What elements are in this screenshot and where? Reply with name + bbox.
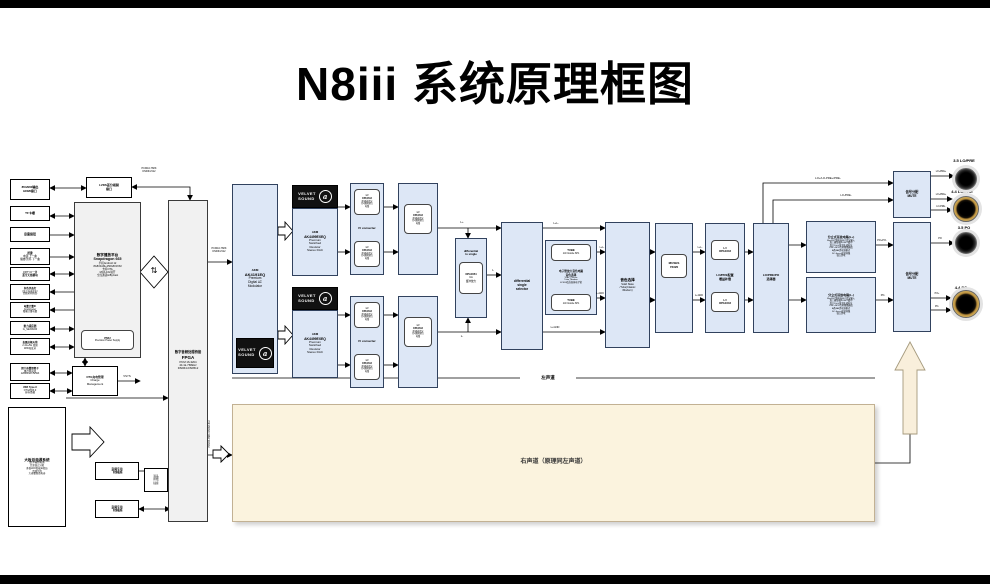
volume-control-box: 音量控制 音量控制: [655, 223, 693, 333]
status-led-box: 多色状态灯(显示充电状态/音频采样状态): [10, 284, 50, 300]
jack-35-lopre: [955, 168, 977, 190]
flywire-socket-b-box: 音频专用飞线插座: [95, 500, 139, 518]
buttons-box: 按键电源 上一曲播放/暂停 下一曲: [10, 248, 50, 265]
display-hdmi-box: 854/960输出HDMI接口: [10, 179, 50, 200]
sig-label-lgnd2: L+GND: [546, 325, 564, 331]
velvet-sound-logo-ak4191: VELVETSOUNDa: [236, 338, 274, 368]
ak4499-dac2-box: AKMAK4499EXEQPremiumSwitchedResistorSter…: [292, 310, 338, 378]
sig-label-lplus: L+: [456, 220, 468, 226]
diagram-canvas: N8iii 系统原理框图 854/960输出HDMI接口TF卡槽音量旋钮按键电源…: [0, 0, 990, 584]
big-up-arrow-rightch: [895, 342, 925, 434]
sig-label-po-pair: PO+PO-: [872, 238, 892, 244]
hollow-arrow-power: [72, 427, 104, 457]
nutube-b: TUBE1/2 Nutube 6P1: [551, 294, 591, 311]
jack-label-35-lopre: 3.5 LO/PRE: [938, 157, 990, 165]
diff-to-single-opamp: OPA1654UA缓冲放大: [459, 262, 483, 294]
tf-card-slot-box: TF卡槽: [10, 206, 50, 221]
sig-label-lgnd3: L+GND: [691, 293, 707, 299]
left-channel-label: 左声道: [520, 372, 576, 384]
out-label-po: PO: [934, 236, 946, 242]
iv1-opamp-b: 1/2OPA1612单通道差分共4通道放大电路: [354, 241, 380, 267]
muses-chip: MUSES72320: [661, 254, 687, 278]
bt-antenna-box: QRTYO一体蓝牙天线模块: [10, 267, 50, 281]
sig-label-ll1: L+L-: [548, 221, 564, 227]
mute-po-box: 信号分配MUTE: [893, 222, 931, 332]
hollow-arrow-dac1: [278, 222, 293, 240]
bottom-black-bar: [0, 575, 990, 584]
vsys-label: VSYS: [119, 374, 135, 380]
page-title: N8iii 系统原理框图: [0, 48, 990, 114]
usb-c-box: USB Type-COTG/PD3.0充电/数据: [10, 383, 50, 399]
i2s-diamond-glyph: ⇅: [148, 264, 160, 278]
akm-circle-logo-icon: a: [319, 190, 332, 203]
pcm-rate-label-mid: PCM44-768KDSD64-512: [204, 246, 234, 256]
main-power-box: 大板总电源系统数字/模拟电源完全独立分离多级LDO低噪声稳压音频专用大容量固态电…: [8, 407, 66, 527]
nutube-a: TUBE1/2 Nutube 6P1: [551, 244, 591, 261]
volume-knob-box: 音量旋钮: [10, 227, 50, 242]
sig-label-lgnd1: L+GND: [592, 291, 608, 297]
ak4499-dac1-box: AKMAK4499EXEQPremiumSwitchedResistorSter…: [292, 208, 338, 276]
iv2-opamp-a: 1/2OPA1612单通道差分共4通道放大电路: [354, 302, 380, 328]
coulometer-box: 电量计量ICCoulometer精确计量电量: [10, 302, 50, 318]
gain-opamp-a: 1/2OPA1642: [711, 240, 739, 260]
out-label-lopre1: LO+PRE+: [929, 169, 953, 175]
fpga-box: 数字音频处理桥接FPGA PCM 16-32bit44.1k-768kHzDSD…: [168, 200, 208, 522]
lpf2-opamp: 1/2OPA1612单通道差分共4通道放大电路: [404, 317, 432, 347]
sig-label-ll2: L+L-: [595, 245, 609, 251]
jack-35-po: [955, 232, 977, 254]
pcm-rate-label-top: PCM44-768KDSD64-512: [134, 166, 164, 176]
sig-label-l: L: [489, 268, 497, 274]
mute-lopre-box: 信号分配MUTE: [893, 171, 931, 218]
otg-charge-box: OTG充电管理ChargeManagement: [72, 366, 118, 396]
akm-circle-logo-icon: a: [259, 347, 272, 360]
iv1-opamp-a: 1/2OPA1612单通道差分共4通道放大电路: [354, 189, 380, 215]
jack-44-lopre: [953, 196, 979, 222]
akm-circle-logo-icon: a: [319, 292, 332, 305]
wire-44: [773, 200, 893, 223]
flywire-socket-a-box: 音频专用飞线插座: [95, 462, 139, 480]
pmu-box: PMUPrecision Power Supply: [81, 330, 134, 350]
wire-14: [132, 187, 190, 200]
velvet-sound-logo-dac2: VELVETSOUNDa: [292, 287, 338, 310]
lvds-box: LVDS差分视频接口: [86, 177, 132, 198]
sig-label-lo-pre-minus: LO-/PRE-: [826, 193, 866, 199]
velvet-sound-text: VELVETSOUND: [298, 294, 316, 304]
jack-label-35-po: 3.5 PO: [944, 224, 984, 232]
pcm-rate-label-bottom: PCM44-768K DSD64-512: [206, 410, 214, 458]
sig-label-lminus: L-: [456, 334, 468, 340]
right-channel-box: 右声道（原理同左声道）: [232, 404, 875, 522]
velvet-sound-text: VELVETSOUND: [238, 348, 256, 358]
gain-opamp-b: 1/2OPA1642: [711, 292, 739, 312]
velvet-sound-text: VELVETSOUND: [298, 192, 316, 202]
sig-label-lo-pre-bus: LO+/LO-PRE+/PRE-: [798, 175, 858, 182]
timbre-select-box: 音色选择 Solid State/Tube(Classic/Modern): [605, 222, 650, 348]
out-label-po-minus: PO-: [930, 304, 944, 310]
sig-label-ll3: L+L-: [693, 245, 707, 251]
velvet-sound-logo-dac1: VELVETSOUNDa: [292, 185, 338, 208]
lcd-cable-socket-box: 液晶排线插座: [144, 468, 168, 492]
lpf1-opamp: 1/2OPA1612单通道差分共4通道放大电路: [404, 204, 432, 234]
out-label-lopre3: LO-PRE-: [929, 204, 953, 210]
top-black-bar: [0, 0, 990, 8]
iv2-opamp-b: 1/2OPA1612单通道差分共4通道放大电路: [354, 354, 380, 380]
frame-antenna-box: 金属边框天线2.4G+5G 双频WiFi和蓝牙: [10, 338, 50, 355]
diff-single-selector-box: differentialsingleselector: [501, 222, 543, 350]
hollow-arrow-dac2: [278, 326, 293, 344]
wire-43: [763, 183, 893, 223]
sig-label-po-minus: PO-: [876, 293, 890, 299]
discrete-amp-lplus-box: 分立式耳放电路(L+)MosFET静电容FET差分输入双三极低噪声JFET缓冲低…: [806, 221, 876, 273]
discrete-amp-lminus-box: 分立式耳放电路(L-)MosFET静电容FET差分输入双三极低噪声JFET缓冲低…: [806, 277, 876, 333]
battery-box: 超大容量锂离子聚合物电池12000mAh 52Wh: [10, 363, 50, 381]
wire-55: [875, 434, 910, 463]
lopre-po-selector-box: LO/PRE/PO选择器: [753, 223, 789, 333]
gsensor-box: 重力感应器G_SENSOR: [10, 321, 50, 335]
hollow-arrow-rightch: [213, 446, 229, 462]
jack-44-po: [952, 290, 980, 318]
